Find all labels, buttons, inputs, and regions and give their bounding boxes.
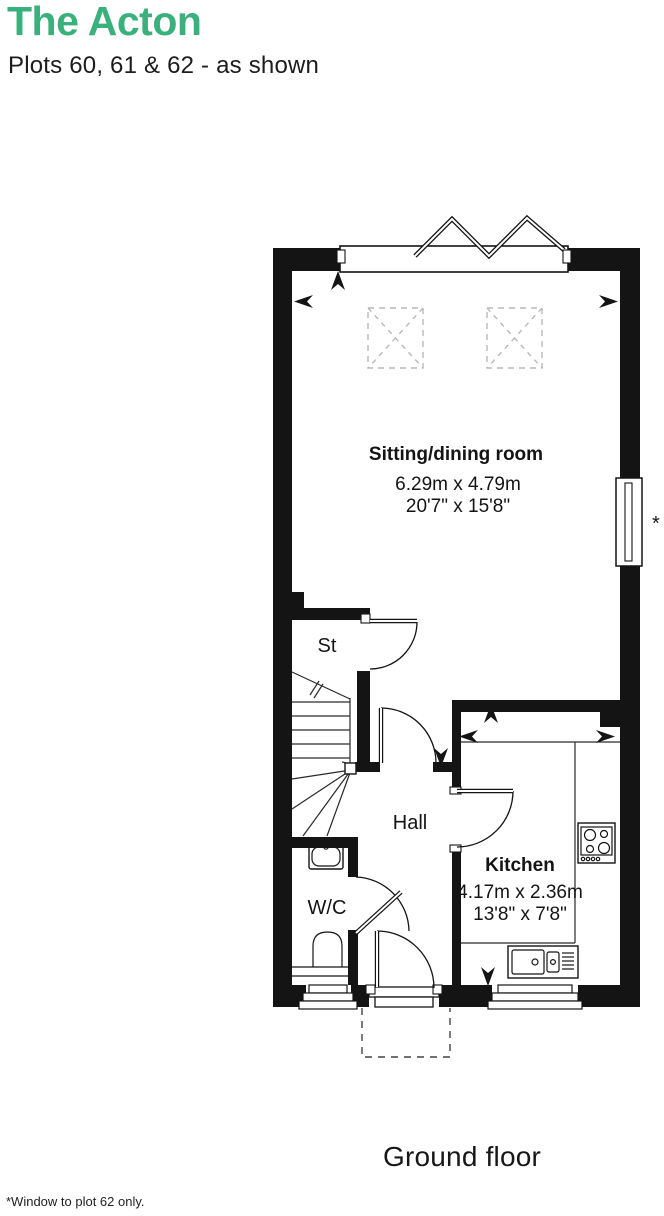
store-door: [361, 614, 417, 669]
front-door: [366, 931, 442, 1007]
hob-icon: [578, 823, 615, 863]
arrow-left-icon: [459, 730, 478, 743]
arrow-up-icon: [331, 271, 345, 290]
room-label-store: St: [318, 635, 337, 657]
arrow-right-icon: [596, 730, 615, 743]
staircase: [292, 672, 356, 836]
window-note-marker: *: [652, 513, 660, 535]
room-label-sitting-dining: Sitting/dining room: [369, 444, 543, 465]
front-door-canopy: [362, 1008, 450, 1057]
floorplan-page: The Acton Plots 60, 61 & 62 - as shown: [0, 0, 664, 1216]
floor-plan: *: [0, 0, 664, 1216]
wc-door: [356, 877, 409, 933]
kitchen-window: [488, 985, 582, 1009]
room-dim-imperial: 20'7" x 15'8": [406, 496, 510, 517]
room-label-hall: Hall: [393, 812, 427, 834]
rooflight-icon: [487, 308, 542, 368]
bifold-door: [337, 218, 571, 272]
room-dim-imperial: 13'8" x 7'8": [473, 904, 567, 925]
arrow-down-icon: [481, 967, 495, 986]
sink-icon: [508, 946, 578, 978]
floor-label: Ground floor: [383, 1141, 541, 1173]
room-label-kitchen: Kitchen: [485, 855, 555, 876]
room-dim-metric: 4.17m x 2.36m: [457, 882, 583, 903]
kitchen-door: [450, 787, 513, 852]
toilet-icon: [292, 932, 352, 976]
hall-door: [381, 708, 436, 763]
wc-window: [299, 985, 357, 1009]
room-dim-metric: 6.29m x 4.79m: [395, 474, 521, 495]
footnote: *Window to plot 62 only.: [6, 1194, 145, 1209]
side-window: [616, 478, 642, 566]
room-label-wc: W/C: [308, 897, 347, 919]
arrow-right-icon: [599, 295, 618, 308]
rooflight-icon: [368, 308, 423, 368]
arrow-left-icon: [294, 295, 313, 308]
